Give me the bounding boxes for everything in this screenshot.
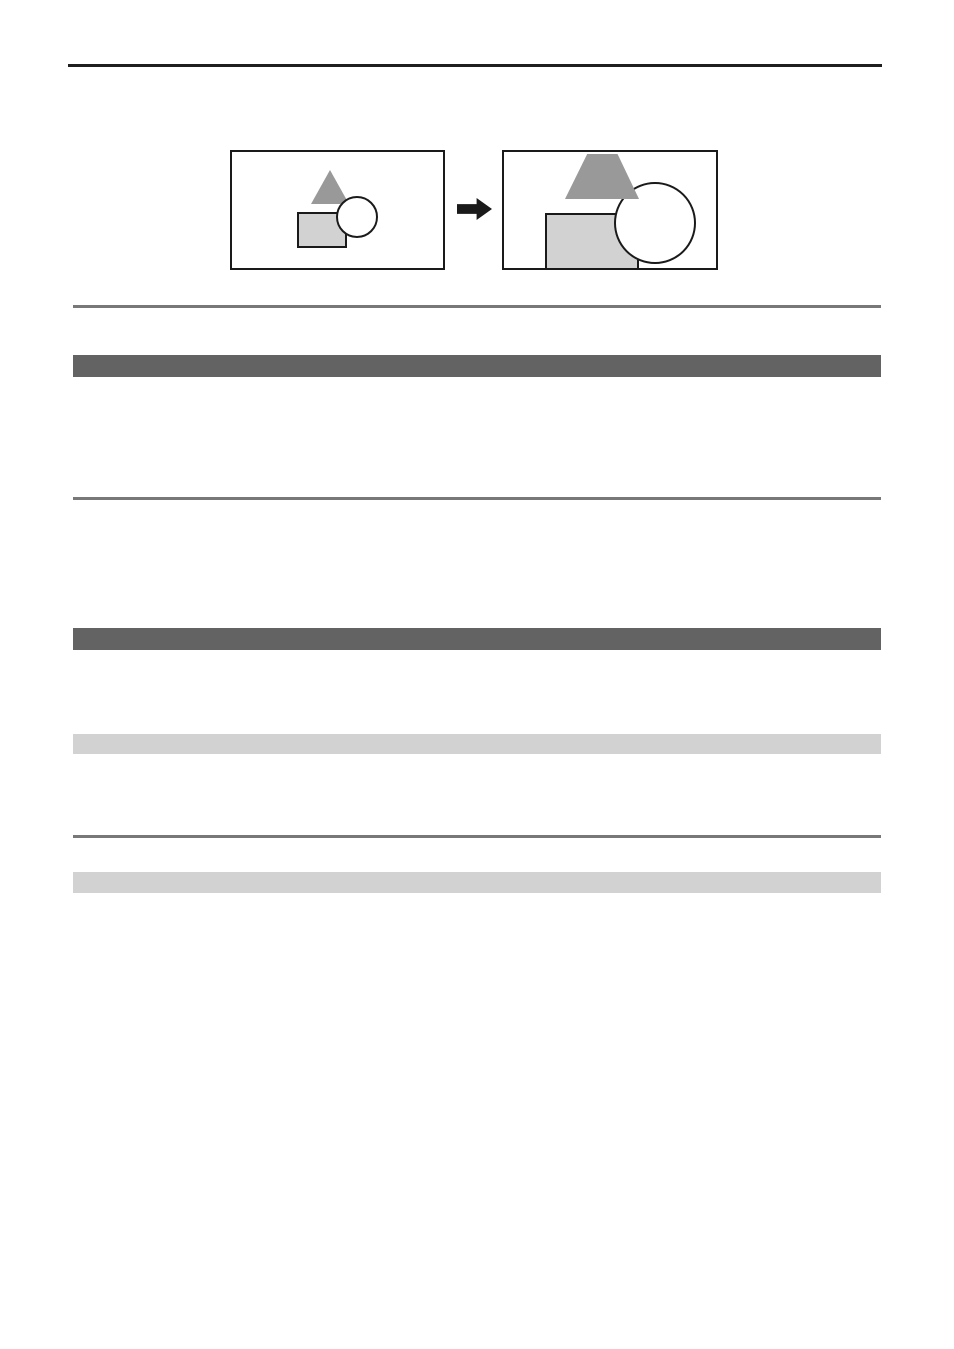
subsection-bar-2	[73, 872, 881, 893]
section-divider-rule-3	[73, 835, 881, 838]
trapezoid-shape-enlarged	[565, 154, 639, 199]
right-arrow-icon	[457, 198, 492, 220]
section-header-bar-2	[73, 628, 881, 650]
top-rule	[68, 64, 882, 67]
section-divider-rule-2	[73, 497, 881, 500]
section-header-bar-1	[73, 355, 881, 377]
document-page	[0, 0, 954, 1349]
triangle-shape	[311, 170, 349, 204]
subsection-bar-1	[73, 734, 881, 754]
circle-shape	[336, 196, 378, 238]
after-frame	[502, 150, 718, 270]
before-frame	[230, 150, 445, 270]
section-divider-rule-1	[73, 305, 881, 308]
